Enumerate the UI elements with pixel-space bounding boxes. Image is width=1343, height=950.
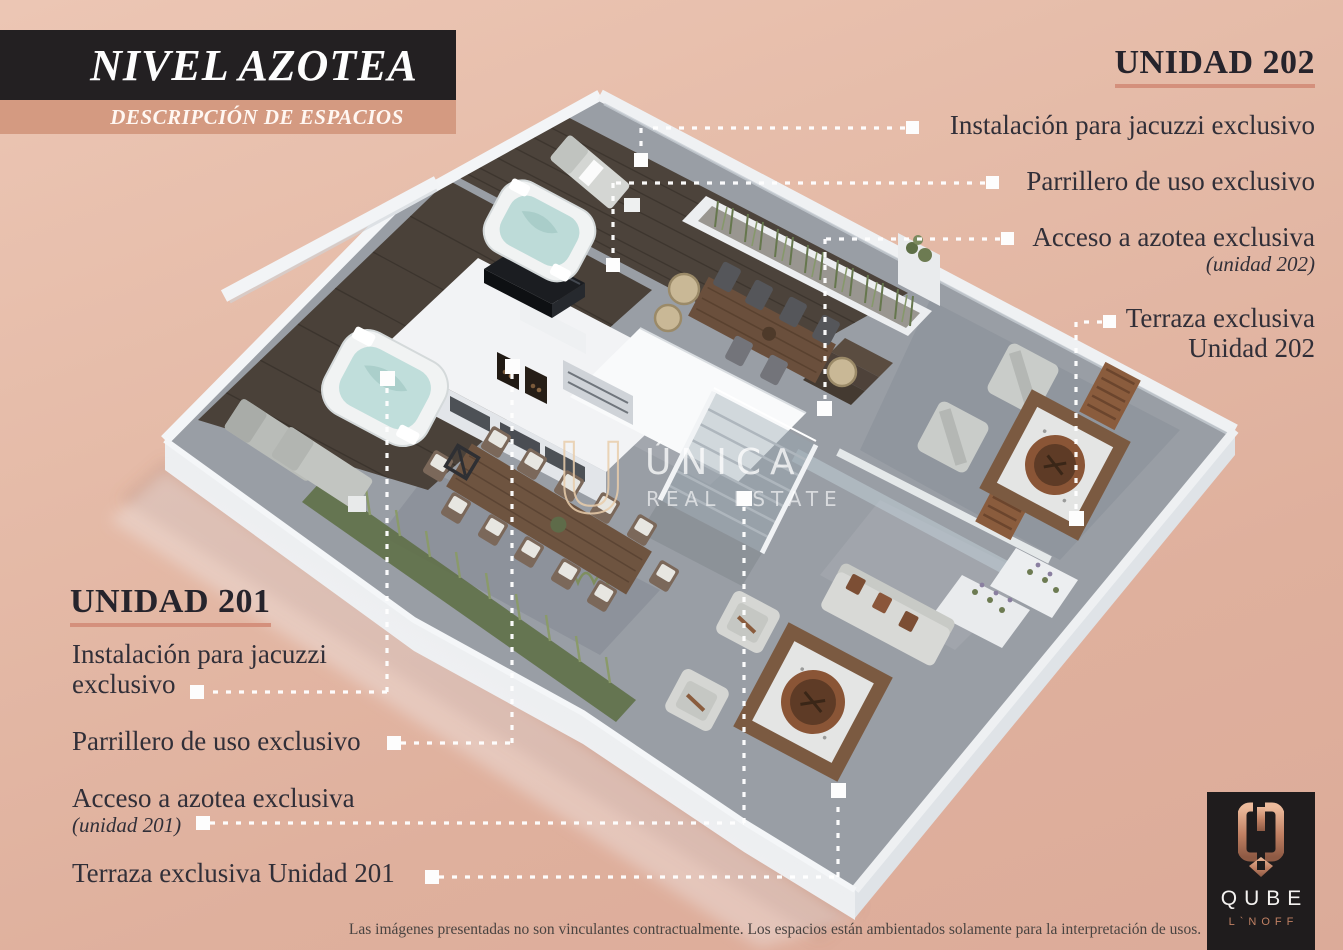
qube-brand: QUBE xyxy=(1214,887,1309,911)
qube-logo: QUBE L`NOFF xyxy=(1207,792,1315,950)
title-bar: NIVEL AZOTEA xyxy=(0,30,456,100)
page: U ÚNICA REAL ESTATE NIVEL xyxy=(0,0,1343,950)
unit-202-heading: UNIDAD 202 xyxy=(1115,44,1316,88)
qube-monogram-icon xyxy=(1238,801,1284,881)
label-parrillero-202: Parrillero de uso exclusivo xyxy=(1026,166,1315,196)
unit-201-heading: UNIDAD 201 xyxy=(70,583,271,627)
disclaimer: Las imágenes presentadas no son vinculan… xyxy=(340,921,1210,939)
page-title: NIVEL AZOTEA xyxy=(90,40,418,91)
label-jacuzzi-202: Instalación para jacuzzi exclusivo xyxy=(950,110,1315,140)
subtitle-bar: DESCRIPCIÓN DE ESPACIOS xyxy=(0,100,456,134)
label-terraza-202: Terraza exclusiva Unidad 202 xyxy=(1126,303,1315,363)
label-parrillero-201: Parrillero de uso exclusivo xyxy=(72,726,361,756)
label-acceso-201-note: (unidad 201) xyxy=(72,813,355,837)
label-jacuzzi-201: Instalación para jacuzzi exclusivo xyxy=(72,639,327,699)
label-terraza-201: Terraza exclusiva Unidad 201 xyxy=(72,858,395,888)
label-acceso-202-note: (unidad 202) xyxy=(1032,252,1315,276)
unit-201-title: UNIDAD 201 xyxy=(70,583,271,620)
unit-202-underline xyxy=(1115,84,1316,88)
label-acceso-201: Acceso a azotea exclusiva (unidad 201) xyxy=(72,783,355,837)
unit-202-title: UNIDAD 202 xyxy=(1115,44,1316,81)
qube-sub-brand: L`NOFF xyxy=(1224,916,1299,928)
page-subtitle: DESCRIPCIÓN DE ESPACIOS xyxy=(110,105,404,130)
label-acceso-202: Acceso a azotea exclusiva (unidad 202) xyxy=(1032,222,1315,276)
unit-201-underline xyxy=(70,623,271,627)
watermark-initial: U xyxy=(556,423,626,535)
watermark-name: ÚNICA xyxy=(645,441,804,483)
